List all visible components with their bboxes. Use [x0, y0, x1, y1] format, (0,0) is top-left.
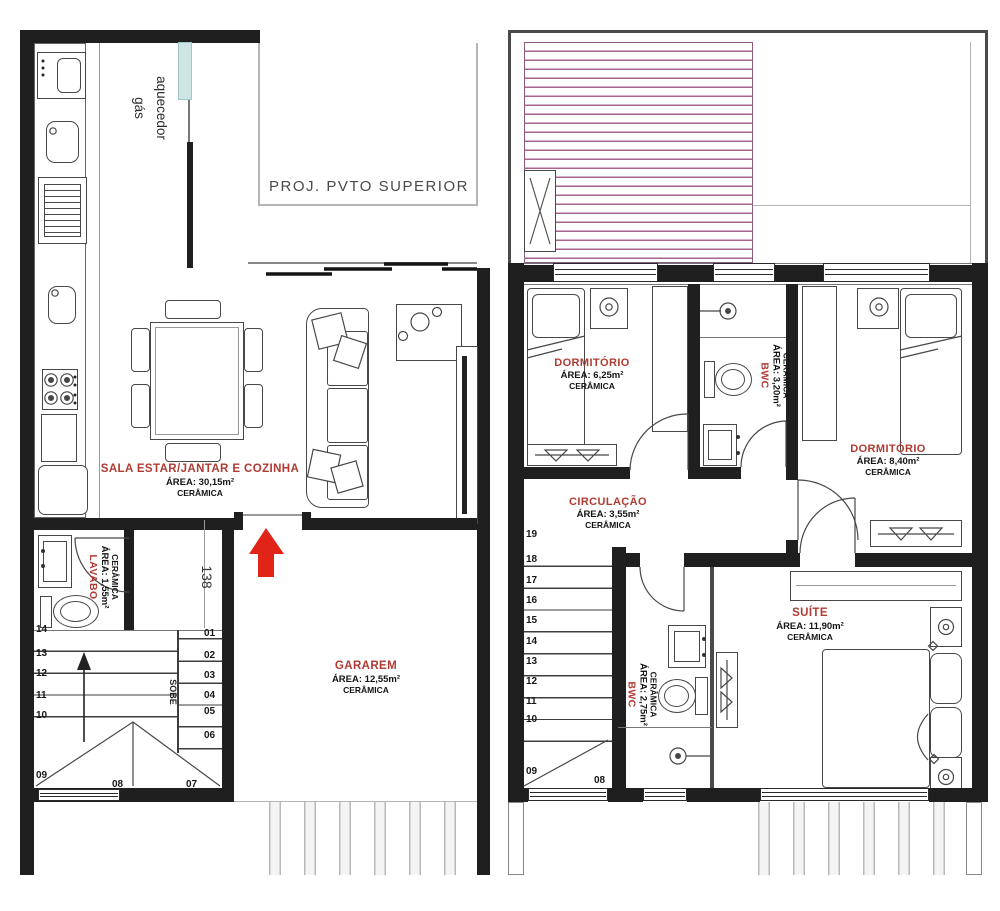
stair-step-number: 13	[526, 656, 537, 667]
stair-step-number: 14	[36, 624, 47, 635]
stair-step-number: 15	[526, 615, 537, 626]
circle	[42, 60, 45, 63]
room-label-suite: SUÍTE ÁREA: 11,90m² CERÂMICA	[730, 607, 890, 642]
stair-step-number: 13	[36, 648, 47, 659]
circle	[702, 653, 706, 657]
circle	[702, 637, 706, 641]
room-label-bwc1: CERÂMICA ÁREA: 3,20m² BWC	[759, 321, 792, 431]
lamp-icon	[870, 298, 888, 316]
stair-step-number: 11	[36, 690, 47, 701]
room-area: ÁREA: 3,20m²	[770, 321, 781, 431]
room-name: BWC	[758, 321, 770, 431]
stair-step-number: 10	[526, 714, 537, 725]
circle	[74, 384, 77, 387]
dimension-138: 138	[199, 547, 215, 607]
room-floor: CERÂMICA	[648, 640, 658, 750]
entrance-arrow-icon	[249, 528, 284, 577]
room-name: DORMITÓRIO	[808, 443, 968, 456]
stair-step-number: 05	[204, 706, 215, 717]
stair-step-number: 04	[204, 690, 215, 701]
stair-step-number: 08	[594, 775, 605, 786]
chimney-x-icon	[530, 178, 550, 244]
heater-label-line1: aquecedor	[150, 38, 172, 178]
room-name: BWC	[625, 640, 637, 750]
room-area: ÁREA: 6,25m²	[512, 370, 672, 381]
room-area: ÁREA: 2,75m²	[637, 640, 648, 750]
path	[878, 528, 954, 540]
circle	[49, 396, 54, 401]
room-floor: CERÂMICA	[80, 488, 320, 498]
door-arc-suite	[800, 498, 855, 553]
stair-step-number: 02	[204, 650, 215, 661]
room-name: SUÍTE	[730, 607, 890, 621]
room-area: ÁREA: 12,55m²	[286, 674, 446, 685]
room-area: ÁREA: 8,40m²	[808, 456, 968, 467]
room-label-dorm1: DORMITÓRIO ÁREA: 6,25m² CERÂMICA	[512, 357, 672, 391]
room-name: LAVABO	[86, 532, 98, 622]
room-name: CIRCULAÇÃO	[528, 496, 688, 509]
circle	[65, 378, 70, 383]
stair-step-number: 08	[112, 779, 123, 790]
bed-fold-line	[918, 714, 929, 760]
circle	[74, 402, 77, 405]
stair-sobe-label: SOBE	[166, 670, 178, 714]
stair-step-number: 19	[526, 529, 537, 540]
circle	[42, 67, 45, 70]
room-name: DORMITÓRIO	[512, 357, 672, 370]
room-floor: CERÂMICA	[781, 321, 791, 431]
circle	[74, 394, 77, 397]
circle	[736, 451, 740, 455]
room-label-dorm2: DORMITÓRIO ÁREA: 8,40m² CERÂMICA	[808, 443, 968, 477]
stair-step-number: 18	[526, 554, 537, 565]
heater-label: aquecedor gás	[128, 38, 172, 178]
lamp-dot	[606, 304, 612, 310]
room-area: ÁREA: 11,90m²	[730, 621, 890, 632]
stair-step-number: 01	[204, 628, 215, 639]
heater-label-line2: gás	[128, 38, 150, 178]
room-floor: CERÂMICA	[512, 381, 672, 391]
proj-label: PROJ. PVTO SUPERIOR	[258, 178, 480, 195]
door-arc-dorm2	[798, 480, 858, 540]
stair-winder-lines	[36, 722, 220, 786]
circle	[65, 396, 70, 401]
stair-step-number: 09	[36, 770, 47, 781]
deco-diamond	[929, 754, 938, 763]
room-area: ÁREA: 3,55m²	[528, 509, 688, 520]
stair-step-number: 16	[526, 595, 537, 606]
deco-diamond	[928, 641, 937, 650]
decor-dot	[399, 332, 408, 341]
plant-icon	[411, 313, 429, 331]
circle	[49, 378, 54, 383]
room-floor: CERÂMICA	[110, 532, 120, 622]
tap-icon	[50, 128, 56, 134]
dresser-marks	[535, 450, 954, 720]
lamp-icon	[600, 298, 618, 316]
stair-step-number: 03	[204, 670, 215, 681]
lamp-icon	[939, 620, 954, 635]
decor-dot	[433, 308, 442, 317]
room-name: GARAREM	[286, 660, 446, 674]
bed-fold-line	[527, 336, 585, 358]
stove-burners-icon	[45, 374, 77, 405]
stair-up-arrowhead	[77, 652, 91, 670]
room-label-bwc2: CERÂMICA ÁREA: 2,75m² BWC	[626, 640, 659, 750]
circle	[736, 435, 740, 439]
stair-step-number: 11	[526, 696, 537, 707]
room-area: ÁREA: 30,15m²	[80, 477, 320, 488]
stair-step-number: 14	[526, 636, 537, 647]
room-label-garagem: GARAREM ÁREA: 12,55m² CERÂMICA	[286, 660, 446, 695]
stair-step-number: 17	[526, 575, 537, 586]
stair-step-number: 06	[204, 730, 215, 741]
stair-step-number: 10	[36, 710, 47, 721]
lamp-icon	[939, 770, 954, 785]
circle	[42, 74, 45, 77]
circle	[74, 376, 77, 379]
circle	[41, 564, 45, 568]
room-floor: CERÂMICA	[528, 520, 688, 530]
door-arc-bwc2	[640, 567, 684, 611]
room-area: ÁREA: 1,55m²	[99, 532, 110, 622]
shower-head-dot	[676, 754, 681, 759]
bed-fold-line	[900, 336, 962, 358]
path	[535, 450, 609, 461]
stair-step-number: 07	[186, 779, 197, 790]
stair-step-number: 12	[36, 668, 47, 679]
washer-knobs	[42, 60, 45, 77]
floor-plan-canvas: aquecedor gás PROJ. PVTO SUPERIOR SALA E…	[0, 0, 1000, 911]
stair-step-number: 09	[526, 766, 537, 777]
room-floor: CERÂMICA	[808, 467, 968, 477]
room-floor: CERÂMICA	[286, 685, 446, 695]
lamp-dot	[943, 774, 948, 779]
room-label-lavabo: CERÂMICA ÁREA: 1,55m² LAVABO	[86, 532, 120, 622]
lamp-dot	[943, 624, 948, 629]
projection-step-line	[266, 264, 477, 274]
door-arc-dorm1	[630, 414, 688, 470]
room-label-sala: SALA ESTAR/JANTAR E COZINHA ÁREA: 30,15m…	[80, 463, 320, 498]
tap-icon	[52, 290, 58, 296]
room-label-circulacao: CIRCULAÇÃO ÁREA: 3,55m² CERÂMICA	[528, 496, 688, 530]
stair-step-number: 12	[526, 676, 537, 687]
lamp-dot	[876, 304, 882, 310]
shower-head-dot	[726, 309, 731, 314]
room-floor: CERÂMICA	[730, 632, 890, 642]
path	[721, 660, 732, 720]
circle	[41, 549, 45, 553]
room-name: SALA ESTAR/JANTAR E COZINHA	[80, 463, 320, 477]
